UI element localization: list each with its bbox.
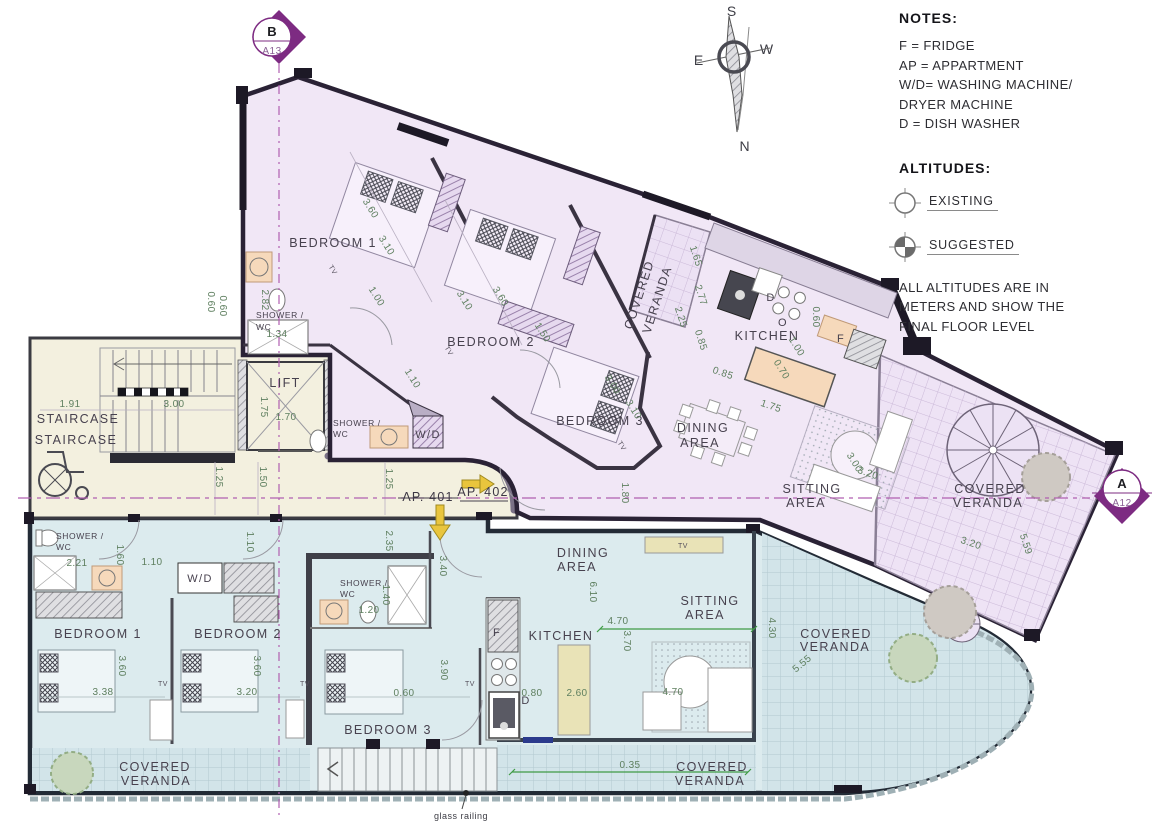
dim-label: 2.82	[259, 289, 270, 310]
room-label: COVERED	[954, 482, 1026, 496]
dim-label: 6.10	[587, 581, 598, 602]
dim-label: 1.25	[383, 468, 394, 489]
dim-label: 0.60	[217, 295, 228, 316]
dim-label: 1.25	[213, 466, 224, 487]
dim-label: 1.10	[141, 557, 162, 568]
dim-label: 0.60	[810, 306, 821, 327]
external-stair	[318, 748, 497, 791]
appliance-label: F	[493, 627, 501, 639]
room-label: KITCHEN	[529, 629, 594, 643]
closet	[234, 596, 278, 622]
dim-label: 3.60	[116, 655, 127, 676]
dim-label: 1.50	[257, 466, 268, 487]
room-label: BEDROOM 3	[344, 723, 432, 737]
room-label: BEDROOM 2	[447, 335, 535, 349]
marker-letter: B	[267, 24, 276, 39]
marker-letter: A	[1117, 476, 1127, 491]
suggested-altitude-label: SUGGESTED	[927, 238, 1019, 255]
tv-label: TV	[465, 681, 475, 688]
altitude-suggested-row: SUGGESTED	[887, 230, 1155, 264]
dim-label: 0.35	[619, 760, 640, 771]
dim-label: 1.34	[266, 329, 287, 340]
dim-label: 1.70	[275, 412, 296, 423]
altitudes-title: ALTITUDES:	[899, 160, 1155, 176]
ap402-label: AP. 402	[457, 485, 508, 499]
dim-label: 3.20	[236, 687, 257, 698]
room-label: LIFT	[269, 376, 300, 390]
fridge-lower	[488, 600, 518, 652]
tv-label: TV	[158, 681, 168, 688]
room-label: COVERED	[800, 627, 872, 641]
dim-label: 3.90	[438, 659, 449, 680]
marker-sheet: A13	[262, 46, 281, 57]
room-label: W/D	[415, 429, 441, 441]
compass-needle	[726, 16, 742, 132]
room-label: DINING	[557, 546, 609, 560]
compass-east: E	[694, 52, 704, 68]
room-label: DINING	[677, 421, 729, 435]
dim-label: 1.91	[59, 399, 80, 410]
note-line: AP = APPARTMENT	[899, 56, 1155, 76]
room-label: AREA	[786, 496, 826, 510]
note-line: W/D= WASHING MACHINE/	[899, 75, 1155, 95]
notes-title: NOTES:	[899, 10, 1155, 26]
room-label: STAIRCASE	[37, 412, 120, 426]
dim-label: 0.60	[393, 688, 414, 699]
tree-gray	[924, 586, 976, 638]
room-label: BEDROOM 1	[289, 236, 377, 250]
suggested-altitude-icon	[887, 230, 923, 264]
closet	[36, 592, 122, 618]
note-line: F = FRIDGE	[899, 36, 1155, 56]
compass-rose: S E W N	[694, 3, 774, 154]
appliance-label: D	[766, 292, 775, 304]
altitude-existing-row: EXISTING	[887, 186, 1155, 220]
dim-label: 1.20	[358, 605, 379, 616]
room-label: VERANDA	[675, 774, 745, 788]
room-label: COVERED	[119, 760, 191, 774]
compass-south: S	[727, 3, 737, 19]
altitudes-note-line: METERS AND SHOW THE	[899, 297, 1155, 317]
appliance-label: F	[837, 333, 845, 345]
stair-landing-wall	[110, 453, 235, 463]
dim-label: 2.35	[383, 530, 394, 551]
room-label: BEDROOM 2	[194, 627, 282, 641]
room-label: SHOWER /	[333, 418, 381, 428]
floor-plan-page: BEDROOM 1 BEDROOM 2 BEDROOM 3 KITCHEN DI…	[0, 0, 1161, 823]
room-label: STAIRCASE	[35, 433, 118, 447]
dim-label: 3.70	[621, 630, 632, 651]
existing-altitude-icon	[887, 186, 923, 220]
dim-label: 3.40	[437, 555, 448, 576]
marker-sheet: A12	[1112, 498, 1131, 509]
altitudes-note-line: FINAL FLOOR LEVEL	[899, 317, 1155, 337]
tv-label: TV	[678, 543, 688, 550]
room-label: VERANDA	[800, 640, 870, 654]
room-label: WC	[340, 589, 355, 599]
appliance-label: O	[778, 317, 788, 329]
tree-gray	[1022, 453, 1070, 501]
room-label: VERANDA	[121, 774, 191, 788]
dim-label: 0.80	[521, 688, 542, 699]
dim-label: 3.38	[92, 687, 113, 698]
room-label: SITTING	[680, 594, 739, 608]
dim-label: 3.60	[251, 655, 262, 676]
room-label: AREA	[680, 436, 720, 450]
dim-label: 4.70	[662, 687, 683, 698]
altitudes-note: ALL ALTITUDES ARE IN METERS AND SHOW THE…	[899, 278, 1155, 337]
room-label: WC	[56, 542, 71, 552]
room-label: SHOWER /	[256, 310, 304, 320]
closet	[224, 563, 274, 593]
glass-railing-label: glass railing	[434, 811, 488, 821]
existing-altitude-label: EXISTING	[927, 194, 998, 211]
dim-label: 1.10	[244, 531, 255, 552]
note-line: DRYER MACHINE	[899, 95, 1155, 115]
room-label: WC	[333, 429, 348, 439]
dim-label: 2.60	[566, 688, 587, 699]
room-label: AREA	[557, 560, 597, 574]
tv-label: TV	[300, 681, 310, 688]
room-label: SHOWER /	[56, 531, 104, 541]
dim-label: 1.40	[380, 584, 391, 605]
dim-label: 4.30	[766, 617, 777, 638]
room-label: AREA	[685, 608, 725, 622]
stair-section-cut	[118, 388, 188, 396]
dim-label: 3.00	[163, 399, 184, 410]
section-marker-b: B A13	[252, 10, 306, 64]
dim-label: 4.70	[607, 616, 628, 627]
ap401-label: AP. 401	[402, 490, 453, 504]
room-label: SITTING	[782, 482, 841, 496]
compass-north: N	[739, 138, 750, 154]
notes-panel: NOTES: F = FRIDGE AP = APPARTMENT W/D= W…	[899, 10, 1155, 336]
dim-label: 1.80	[619, 482, 630, 503]
dim-label: 0.60	[205, 291, 216, 312]
dim-label: 1.75	[258, 396, 269, 417]
room-label: COVERED	[676, 760, 748, 774]
tree-green	[889, 634, 937, 682]
dim-label: 2.21	[66, 558, 87, 569]
room-label: W/D	[187, 573, 213, 585]
altitudes-note-line: ALL ALTITUDES ARE IN	[899, 278, 1155, 298]
note-line: D = DISH WASHER	[899, 114, 1155, 134]
tree-green	[51, 752, 93, 794]
bed-lower-3	[325, 650, 403, 714]
room-label: BEDROOM 1	[54, 627, 142, 641]
room-label: VERANDA	[953, 496, 1023, 510]
dim-label: 1.60	[114, 544, 125, 565]
